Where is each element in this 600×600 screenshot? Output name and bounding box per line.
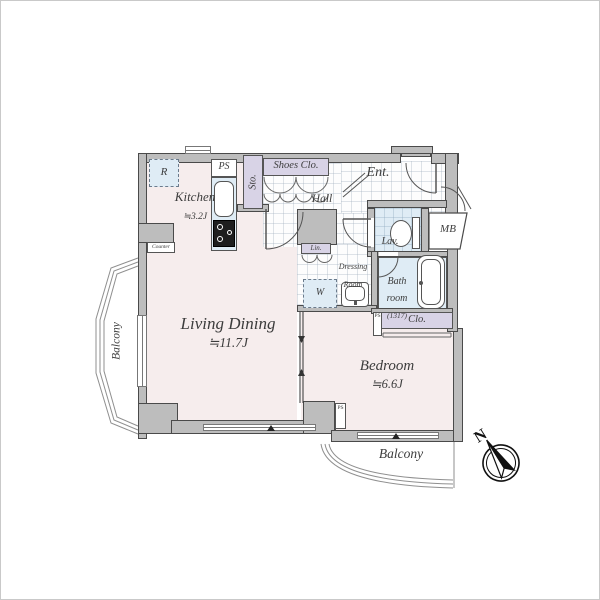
wall-counter-block (138, 223, 174, 243)
wall-top-step (391, 146, 433, 154)
entrance-label: Ent. (353, 165, 403, 181)
wall-lav-right (421, 208, 429, 254)
bathroom-name-line2: room (387, 293, 408, 304)
kitchen-window (185, 146, 211, 154)
lav-door-opening (367, 218, 375, 247)
linen-label: Lin. (301, 244, 331, 252)
compass-north-label: N (471, 426, 490, 447)
bedroom-label: Bedroom ≒6.6J (317, 357, 457, 394)
bath-door-opening (379, 251, 398, 257)
bedroom-window (357, 432, 439, 439)
pipe-space-bedroom-label: PS (336, 405, 345, 413)
bathtub-icon (417, 255, 445, 309)
wall-lav-top (367, 200, 447, 208)
living-dining-size: ≒11.7J (208, 335, 248, 350)
balcony-bottom-label: Balcony (361, 446, 441, 462)
counter-label: Counter (147, 244, 175, 250)
living-dining-name: Living Dining (181, 314, 276, 333)
bedroom-name: Bedroom (360, 358, 414, 374)
pipe-space-label: PS (211, 161, 237, 173)
dressing-room-label: Dressing Room (329, 256, 377, 291)
bathroom-name-line1: Bath (388, 276, 407, 287)
pipe-space-closet-label: PS (373, 313, 382, 321)
kitchen-size: ≒3.2J (183, 212, 207, 222)
toilet-tank-icon (412, 217, 420, 249)
living-window (203, 424, 316, 431)
dressing-room-line1: Dressing (339, 262, 368, 271)
floor-plan: N Kitchen ≒3.2J Living Dining ≒11.7J Bed… (0, 0, 600, 600)
balcony-left-window (137, 315, 147, 387)
meter-box-label: MB (432, 223, 464, 236)
kitchen-name: Kitchen (175, 189, 215, 204)
storage-label: Sto. (247, 174, 259, 189)
compass: N (463, 418, 525, 488)
washer-label: W (303, 287, 337, 299)
closet-label: Clo. (381, 314, 453, 326)
refrigerator-label: R (149, 166, 179, 179)
living-dining-label: Living Dining ≒11.7J (153, 314, 303, 353)
bedroom-size: ≒6.6J (371, 377, 403, 391)
dressing-room-line2: Room (344, 280, 363, 289)
wall-left (138, 153, 147, 439)
balcony-left-label: Balcony (110, 322, 123, 360)
lavatory-label: Lav. (375, 236, 405, 248)
hall-label: Hall (301, 193, 343, 206)
wall-hall-block (297, 209, 337, 245)
shoes-closet-label: Shoes Clo. (263, 160, 329, 172)
kitchen-label: Kitchen ≒3.2J (159, 188, 231, 225)
